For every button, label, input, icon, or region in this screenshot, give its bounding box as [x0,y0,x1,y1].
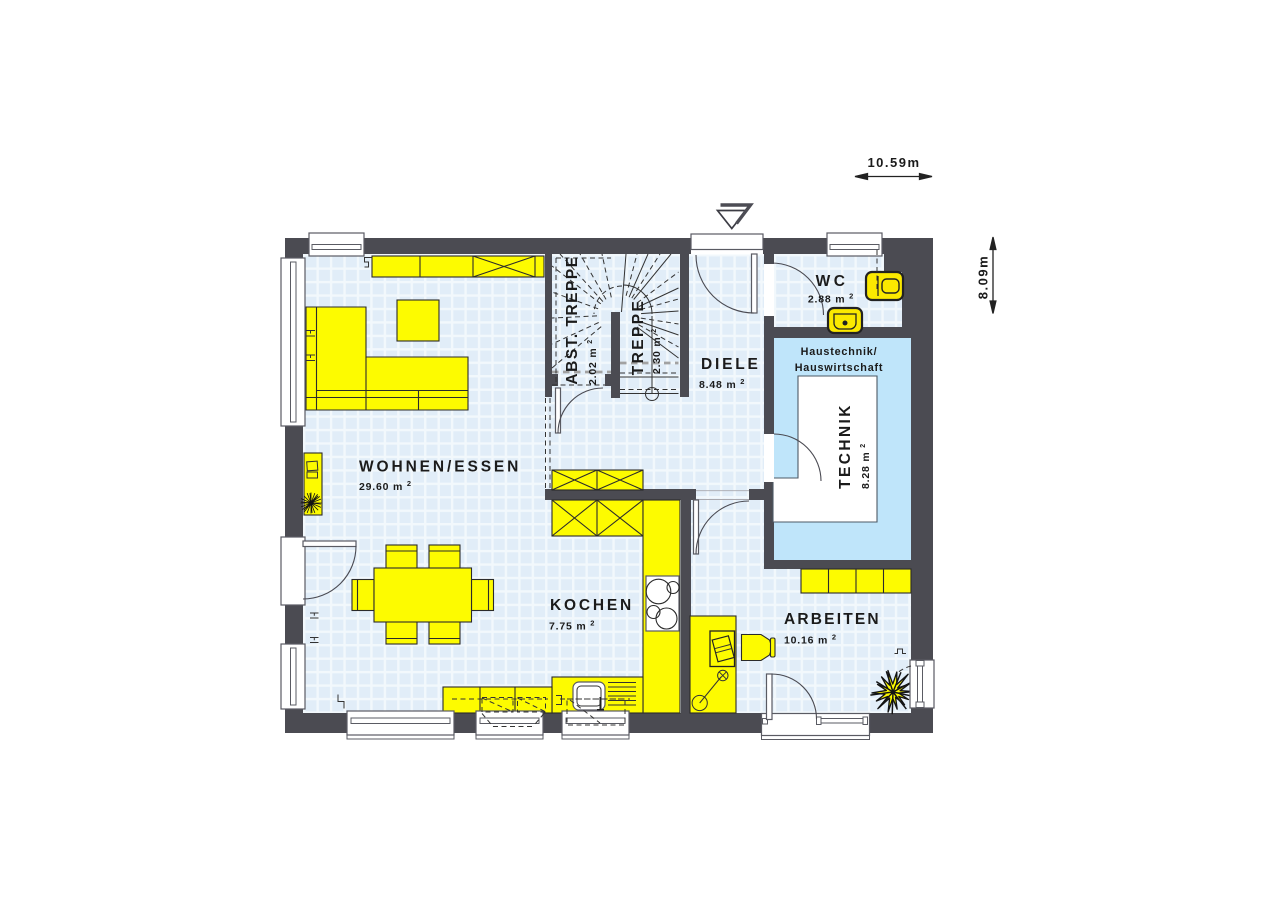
svg-text:8.09m: 8.09m [975,255,990,299]
svg-text:8.48 m 2: 8.48 m 2 [699,377,745,391]
svg-text:10.59m: 10.59m [867,155,920,170]
svg-text:29.60 m 2: 29.60 m 2 [359,479,412,493]
svg-text:WC: WC [816,273,849,290]
svg-text:Haustechnik/: Haustechnik/ [801,346,878,358]
svg-text:ABST. TREPPE: ABST. TREPPE [564,255,581,384]
svg-text:8.28 m 2: 8.28 m 2 [860,443,872,489]
svg-text:ARBEITEN: ARBEITEN [784,611,881,628]
svg-text:TREPPE: TREPPE [630,299,647,375]
svg-text:TECHNIK: TECHNIK [837,403,854,489]
svg-text:2.88 m 2: 2.88 m 2 [808,292,854,306]
svg-text:KOCHEN: KOCHEN [550,597,634,614]
svg-text:10.16 m 2: 10.16 m 2 [784,633,837,647]
svg-text:WOHNEN/ESSEN: WOHNEN/ESSEN [359,459,521,476]
svg-text:Hauswirtschaft: Hauswirtschaft [795,362,884,374]
svg-text:2.30 m 2: 2.30 m 2 [651,328,663,374]
svg-text:2.02 m 2: 2.02 m 2 [587,339,599,385]
svg-text:DIELE: DIELE [701,356,761,373]
svg-text:7.75 m 2: 7.75 m 2 [549,619,595,633]
